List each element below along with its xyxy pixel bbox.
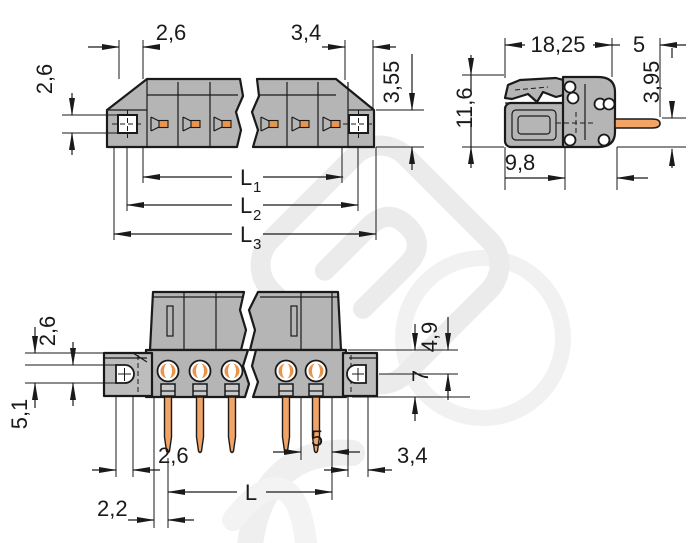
technical-drawing-page: 2,6 3,4 2,6 3,55 L 1 L 2 L 3 [0, 0, 697, 543]
dim-front-slot: 3,4 [397, 443, 428, 468]
dim-front-holew: 2,6 [158, 443, 189, 468]
dim-top-pitch: 2,6 [156, 20, 187, 45]
dim-top-hole: 2,6 [32, 64, 57, 95]
dim-front-inset: 2,2 [97, 496, 128, 521]
dim-top-end: 3,4 [291, 20, 322, 45]
dim-front-flange: 7 [408, 370, 433, 382]
dim-side-depth: 9,8 [505, 150, 536, 175]
dim-front-hole: 2,6 [35, 316, 60, 347]
dim-front-top: 4,9 [417, 322, 442, 353]
dim-front-pitch: 5 [311, 426, 323, 451]
dim-top-depth: 3,55 [379, 61, 404, 104]
dim-l1: L [240, 165, 252, 190]
dim-side-width: 18,25 [530, 32, 585, 57]
dim-front-drop: 5,1 [7, 399, 32, 430]
solder-pin-side [615, 119, 660, 128]
dim-l1-sub: 1 [253, 179, 261, 196]
latch-lever [505, 78, 567, 102]
dim-l3: L [240, 222, 252, 247]
dim-side-offset: 3,95 [639, 61, 664, 104]
dim-side-pin: 5 [633, 32, 645, 57]
dim-l2-sub: 2 [253, 207, 261, 224]
dim-front-length: L [245, 480, 257, 505]
side-view: 18,25 5 11,6 3,95 9,8 [452, 32, 686, 190]
dim-l3-sub: 3 [253, 236, 261, 253]
technical-drawing-canvas: 2,6 3,4 2,6 3,55 L 1 L 2 L 3 [0, 0, 697, 543]
dim-l2: L [240, 193, 252, 218]
dim-side-height: 11,6 [452, 87, 477, 128]
